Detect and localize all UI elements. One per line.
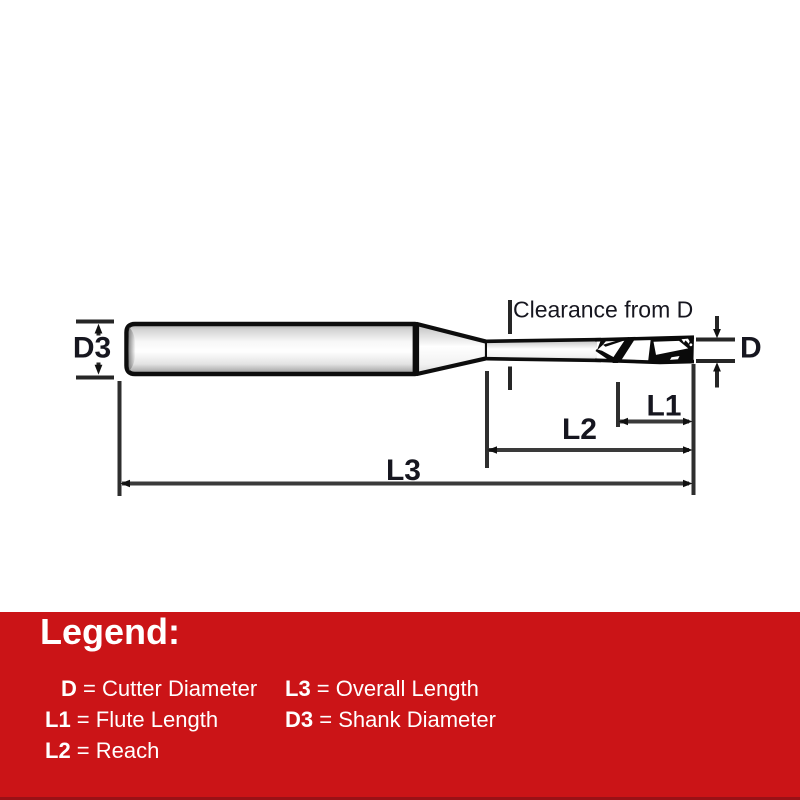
svg-text:L3: L3 (386, 454, 421, 487)
svg-text:L2: L2 (562, 413, 597, 446)
svg-text:L1: L1 (646, 390, 681, 423)
svg-text:Clearance from D: Clearance from D (513, 297, 693, 323)
svg-text:D: D (740, 332, 762, 365)
svg-text:D3: D3 (73, 332, 111, 365)
